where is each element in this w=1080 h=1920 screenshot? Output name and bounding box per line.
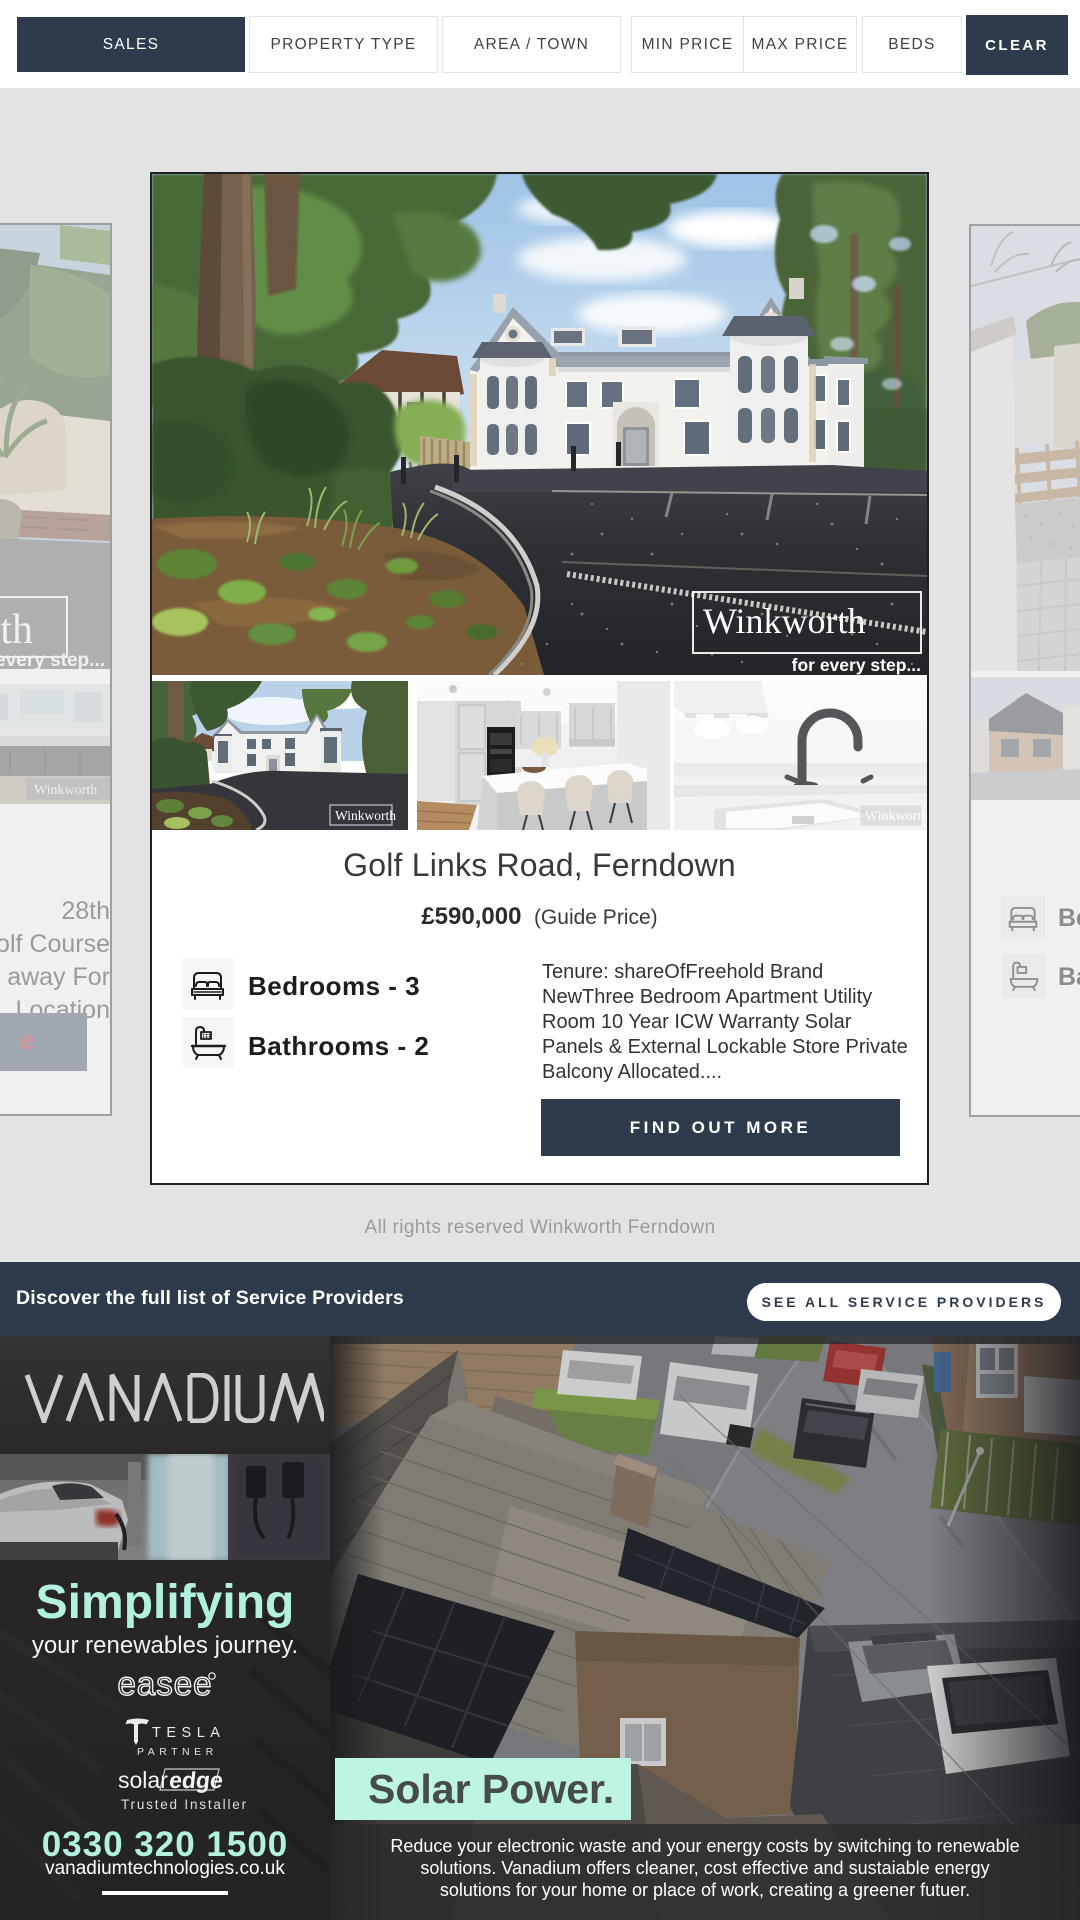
svg-text:Winkworth: Winkworth (34, 783, 97, 798)
svg-text:PARTNER: PARTNER (137, 1746, 218, 1758)
svg-text:Winkworth: Winkworth (335, 808, 396, 823)
svg-text:Winkworth: Winkworth (865, 809, 927, 824)
svg-text:for every step...: for every step... (792, 655, 921, 675)
svg-text:Trusted Installer: Trusted Installer (121, 1797, 248, 1812)
svg-text:TESLA: TESLA (152, 1725, 225, 1741)
svg-text:Winkworth: Winkworth (703, 601, 866, 641)
svg-text:orth: orth (0, 607, 33, 653)
svg-text:easee: easee (118, 1668, 213, 1702)
svg-text:for every step...: for every step... (0, 650, 105, 669)
